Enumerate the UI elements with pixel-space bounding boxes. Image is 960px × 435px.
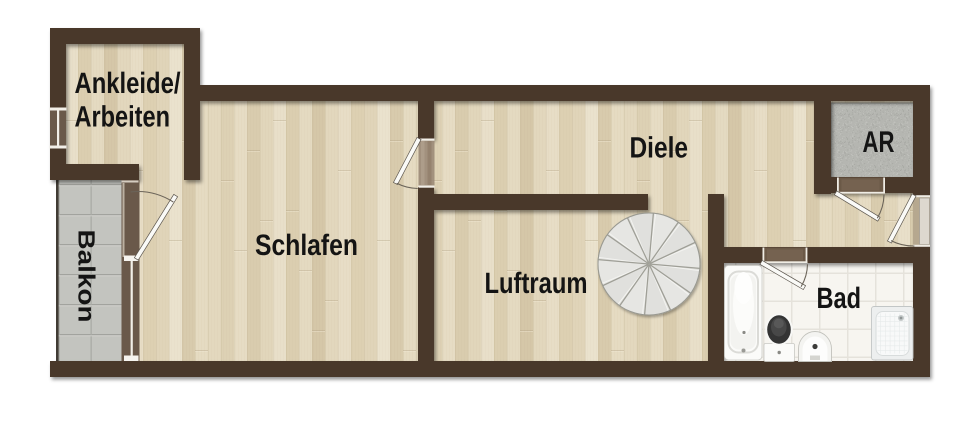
- svg-text:Ankleide/: Ankleide/: [75, 67, 181, 100]
- svg-text:Arbeiten: Arbeiten: [75, 101, 171, 134]
- svg-text:Balkon: Balkon: [74, 230, 100, 323]
- svg-text:Diele: Diele: [630, 132, 689, 165]
- svg-text:AR: AR: [863, 126, 895, 159]
- svg-text:Luftraum: Luftraum: [485, 267, 588, 300]
- svg-text:Bad: Bad: [817, 282, 862, 315]
- svg-text:Schlafen: Schlafen: [255, 229, 358, 262]
